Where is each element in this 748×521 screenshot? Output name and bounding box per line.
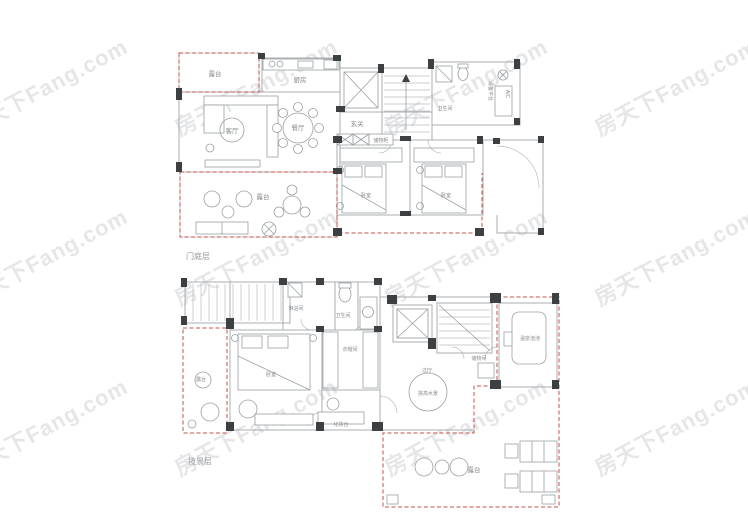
room-label: 化妆台 — [333, 421, 348, 428]
floorplan-screenshot: 房天下Fang.com房天下Fang.com房天下Fang.com房天下Fang… — [0, 0, 748, 521]
kitchen-counter — [263, 59, 339, 70]
room-label: 露台 — [257, 192, 270, 201]
floor-plan-lower: 淋浴间 卫生间 衣帽间 卧室 露台 化妆台 过厅 挑高水景 储物间 温泉泡池 露… — [181, 278, 559, 507]
room-label: 设备平台 — [487, 81, 494, 101]
room-label: 淋浴间 — [288, 305, 303, 312]
floor-plan-upper: 露台 厨房 客厅 餐厅 玄关 卫生间 设备平台 A/C 储物柜 卧室 卧室 露台… — [176, 53, 544, 261]
room-label: 过厅 — [422, 367, 432, 374]
bed-icon — [337, 164, 387, 213]
room-label: 客厅 — [226, 126, 240, 135]
room-label: 卧室 — [266, 371, 276, 378]
storage-cabinet — [478, 363, 494, 378]
room-label: 温泉泡池 — [520, 335, 540, 342]
terrace-furniture — [196, 185, 310, 236]
floor-label-lower: 揽景层 — [188, 456, 212, 466]
room-label: 露台 — [196, 376, 206, 383]
room-label: A/C — [504, 90, 510, 99]
room-label: 储物间 — [471, 355, 486, 362]
stairs-icon — [384, 74, 430, 132]
room-label: 餐厅 — [292, 123, 306, 132]
elevator-icon — [344, 72, 378, 108]
room-label: 卧室 — [361, 192, 371, 199]
bed-icon — [417, 164, 467, 213]
room-label: 卫生间 — [437, 105, 452, 112]
stairs-icon — [437, 303, 492, 353]
room-label: 玄关 — [351, 119, 365, 128]
room-label: 厨房 — [294, 75, 307, 84]
wardrobe-icon — [323, 332, 378, 388]
room-label: 卧室 — [441, 192, 451, 199]
elevator-icon — [393, 305, 432, 342]
bathroom-fixtures — [436, 64, 468, 82]
room-label: 露台 — [209, 69, 222, 78]
room-label: 储物柜 — [373, 137, 388, 144]
room-label: 卫生间 — [335, 312, 350, 319]
floor-plan-drawing: 露台 厨房 客厅 餐厅 玄关 卫生间 设备平台 A/C 储物柜 卧室 卧室 露台… — [0, 0, 748, 521]
floor-label-upper: 门庭层 — [186, 251, 210, 261]
room-label: 衣帽间 — [342, 346, 357, 353]
bed-icon — [232, 334, 317, 390]
sofa-icon — [204, 96, 278, 167]
room-label: 挑高水景 — [418, 390, 438, 397]
stairs-icon — [193, 284, 281, 321]
room-label: 露台 — [468, 465, 481, 474]
